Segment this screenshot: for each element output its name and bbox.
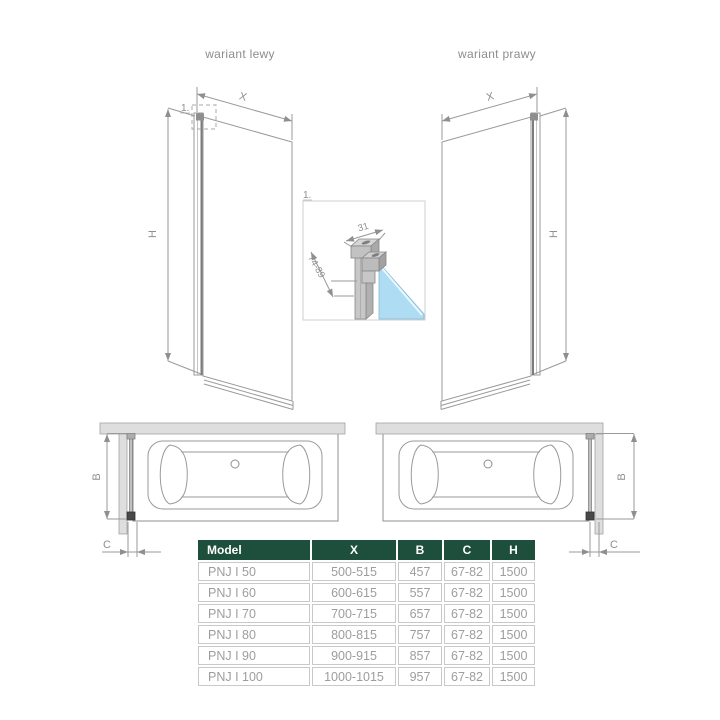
header-model: Model [198, 540, 310, 560]
left-tub-top-view: B C [91, 423, 345, 557]
cell-model: PNJ I 100 [198, 667, 310, 686]
dim-c-left-label: C [103, 539, 111, 551]
cell-b: 857 [398, 646, 442, 665]
dim-x-right-label: X [485, 90, 496, 104]
table-row: PNJ I 50 500-515 457 67-82 1500 [198, 562, 535, 581]
dim-b-right-label: B [616, 473, 628, 480]
header-h: H [492, 540, 535, 560]
cell-b: 957 [398, 667, 442, 686]
table-row: PNJ I 100 1000-1015 957 67-82 1500 [198, 667, 535, 686]
spec-table: Model X B C H PNJ I 50 500-515 457 67-82… [196, 538, 537, 688]
left-panel-drawing: 1. X H [147, 87, 293, 410]
dim-c-right: C [569, 522, 640, 557]
table-row: PNJ I 80 800-815 757 67-82 1500 [198, 625, 535, 644]
cell-c: 67-82 [444, 667, 490, 686]
header-x: X [312, 540, 396, 560]
right-tub-top-view: B C [376, 423, 640, 557]
cell-b: 557 [398, 583, 442, 602]
cell-x: 600-615 [312, 583, 396, 602]
dim-c-right-label: C [610, 539, 618, 551]
cell-model: PNJ I 80 [198, 625, 310, 644]
wall-top-left-view [100, 423, 345, 434]
cell-model: PNJ I 90 [198, 646, 310, 665]
tub-outline-right [383, 430, 589, 521]
cell-c: 67-82 [444, 583, 490, 602]
wall-bracket-left [196, 114, 204, 121]
cell-x: 800-815 [312, 625, 396, 644]
dim-x-left: X [197, 87, 292, 140]
right-panel-drawing: X H [441, 87, 566, 410]
cell-model: PNJ I 50 [198, 562, 310, 581]
table-row: PNJ I 60 600-615 557 67-82 1500 [198, 583, 535, 602]
spec-table-header-row: Model X B C H [198, 540, 535, 560]
table-row: PNJ I 70 700-715 657 67-82 1500 [198, 604, 535, 623]
header-c: C [444, 540, 490, 560]
wall-top-right-view [376, 423, 603, 434]
cell-h: 1500 [492, 646, 535, 665]
cell-h: 1500 [492, 583, 535, 602]
dim-h-left: H [147, 108, 201, 374]
cell-h: 1500 [492, 625, 535, 644]
cell-model: PNJ I 70 [198, 604, 310, 623]
drain-icon-right [484, 460, 492, 468]
drain-icon-left [231, 460, 239, 468]
cell-x: 700-715 [312, 604, 396, 623]
cell-x: 500-515 [312, 562, 396, 581]
cell-c: 67-82 [444, 625, 490, 644]
wall-profile-right [530, 113, 540, 375]
dim-h-right-label: H [548, 230, 560, 238]
dim-h-left-label: H [147, 230, 159, 238]
cell-h: 1500 [492, 562, 535, 581]
glass-panel-right [442, 117, 531, 401]
cell-h: 1500 [492, 667, 535, 686]
wall-bracket-right [530, 114, 538, 121]
cell-model: PNJ I 60 [198, 583, 310, 602]
detail-view: 1. [303, 190, 425, 320]
cell-b: 757 [398, 625, 442, 644]
glass-panel-left [203, 117, 292, 401]
cell-c: 67-82 [444, 646, 490, 665]
dim-c-left: C [102, 522, 161, 557]
cell-x: 1000-1015 [312, 667, 396, 686]
cell-b: 457 [398, 562, 442, 581]
technical-drawing-page: wariant lewy wariant prawy [0, 0, 720, 720]
cell-c: 67-82 [444, 562, 490, 581]
table-row: PNJ I 90 900-915 857 67-82 1500 [198, 646, 535, 665]
header-b: B [398, 540, 442, 560]
dim-x-right: X [442, 87, 537, 140]
wall-profile-left [194, 113, 204, 375]
bottom-seal-right [441, 380, 530, 410]
cell-c: 67-82 [444, 604, 490, 623]
cell-x: 900-915 [312, 646, 396, 665]
cell-b: 657 [398, 604, 442, 623]
bottom-seal-left [204, 380, 293, 410]
cell-h: 1500 [492, 604, 535, 623]
dim-x-left-label: X [238, 90, 249, 104]
detail-ref-label: 1. [303, 190, 311, 201]
tub-outline-left [133, 430, 338, 521]
dim-b-left-label: B [91, 473, 103, 480]
